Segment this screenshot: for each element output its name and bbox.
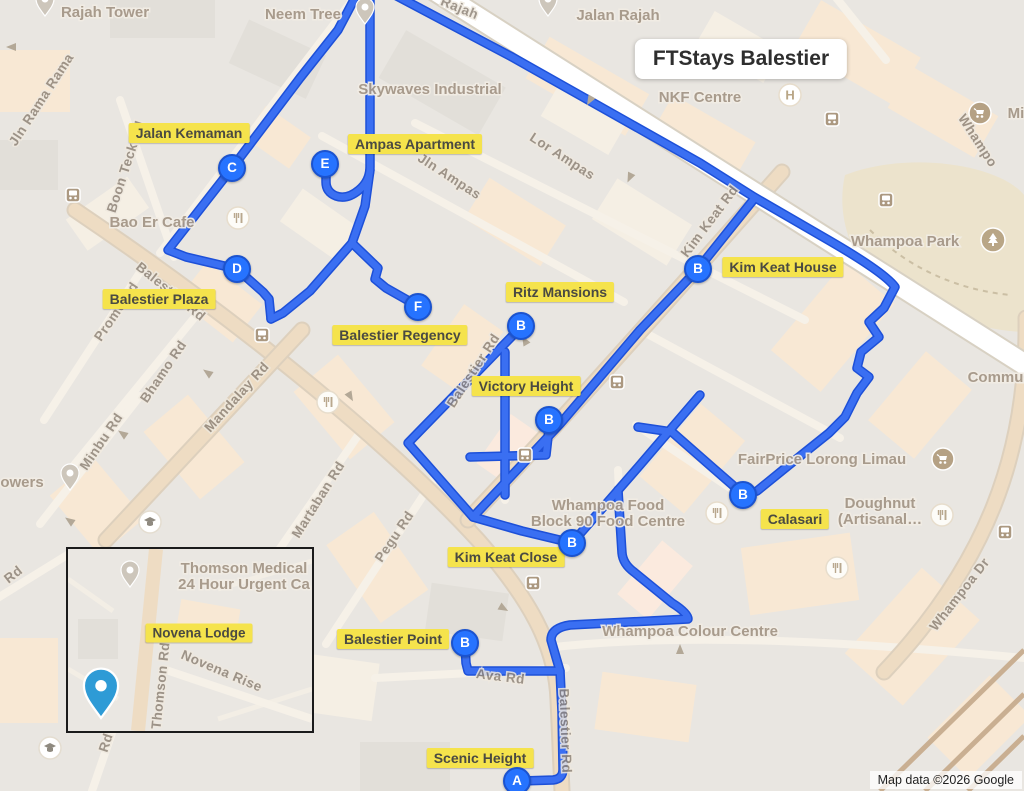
marker-B[interactable]: B <box>558 529 586 557</box>
street-label: Whampoa Dr <box>926 555 992 634</box>
restaurant-icon <box>317 391 339 413</box>
street-label: Novena Rise <box>179 647 265 695</box>
pin-icon <box>61 464 79 490</box>
marker-A[interactable]: A <box>503 767 531 791</box>
poi-label: Commu… <box>968 369 1024 386</box>
tree-icon <box>981 228 1005 252</box>
poi-label: FairPrice Lorong Limau <box>738 451 906 468</box>
place-label-kim-keat-house: Kim Keat House <box>722 257 843 277</box>
arrow-icon <box>201 366 214 378</box>
place-label-balestier-plaza: Balestier Plaza <box>103 289 216 309</box>
arrow-icon <box>345 391 357 404</box>
poi-label: Neem Tree <box>265 6 341 23</box>
svg-text:H: H <box>785 88 794 103</box>
arrow-icon <box>624 172 635 184</box>
pin-icon <box>539 0 557 16</box>
street-label: Lor Ampas <box>527 130 598 183</box>
street-label: Minbu Rd <box>77 410 126 473</box>
bus-icon <box>518 448 532 462</box>
place-label-calasari: Calasari <box>761 509 829 529</box>
restaurant-icon <box>227 207 249 229</box>
arrow-icon <box>6 43 16 51</box>
marker-E[interactable]: E <box>311 150 339 178</box>
bus-icon <box>66 188 80 202</box>
street-label: Rd <box>96 731 116 754</box>
marker-D[interactable]: D <box>223 255 251 283</box>
street-label: Thomson Rd <box>148 641 172 730</box>
bus-icon <box>526 576 540 590</box>
place-label-balestier-point: Balestier Point <box>337 629 449 649</box>
street-label: Pegu Rd <box>372 508 417 565</box>
map-attribution: Map data ©2026 Google <box>870 771 1022 789</box>
poi-label: owers <box>0 474 43 491</box>
arrow-icon <box>63 514 76 526</box>
marker-B[interactable]: B <box>507 312 535 340</box>
bus-icon <box>825 112 839 126</box>
street-label: Martaban Rd <box>289 459 348 541</box>
bus-icon <box>879 193 893 207</box>
school-icon <box>139 511 161 533</box>
street-label: Jln Rama Rama <box>6 51 77 149</box>
place-label-scenic-height: Scenic Height <box>427 748 534 768</box>
place-label-balestier-regency: Balestier Regency <box>332 325 467 345</box>
place-label-jalan-kemaman: Jalan Kemaman <box>129 123 250 143</box>
map-canvas[interactable]: HJln Rama RamaBoon Teck RdRajahJln Ampas… <box>0 0 1024 791</box>
poi-label: Bao Er Cafe <box>109 214 194 231</box>
poi-label: Doughnut(Artisanal… <box>838 495 922 528</box>
place-label-novena-lodge: Novena Lodge <box>145 624 252 643</box>
poi-label: Whampoa Colour Centre <box>602 623 778 640</box>
route-line[interactable] <box>638 427 744 495</box>
marker-B[interactable]: B <box>451 629 479 657</box>
poi-label: NKF Centre <box>659 89 742 106</box>
poi-label: Whampoa Park <box>851 233 960 250</box>
bus-icon <box>998 525 1012 539</box>
hospital-icon: H <box>779 84 801 106</box>
poi-label: Skywaves Industrial <box>358 81 501 98</box>
inset-map[interactable]: Thomson Medical24 Hour Urgent CaThomson … <box>66 547 314 733</box>
poi-label: Mi <box>1008 105 1024 122</box>
street-label: Mandalay Rd <box>201 359 272 435</box>
place-label-kim-keat-close: Kim Keat Close <box>448 547 565 567</box>
location-pin-icon <box>84 669 118 718</box>
bus-icon <box>255 328 269 342</box>
marker-C[interactable]: C <box>218 154 246 182</box>
school-icon <box>39 737 61 759</box>
pin-icon <box>36 0 54 16</box>
street-label: Rd <box>1 563 25 587</box>
marker-B[interactable]: B <box>729 481 757 509</box>
street-label: Jln Ampas <box>415 150 484 202</box>
poi-label: Rajah Tower <box>61 4 149 21</box>
page-title: FTStays Balestier <box>635 39 847 79</box>
marker-B[interactable]: B <box>684 255 712 283</box>
pin-icon <box>121 561 139 587</box>
cart-icon <box>932 448 954 470</box>
restaurant-icon <box>931 504 953 526</box>
marker-F[interactable]: F <box>404 293 432 321</box>
arrow-icon <box>498 603 511 615</box>
place-label-ritz-mansions: Ritz Mansions <box>506 282 614 302</box>
street-label: Bhamo Rd <box>137 338 189 406</box>
bus-icon <box>610 375 624 389</box>
restaurant-icon <box>826 557 848 579</box>
restaurant-icon <box>706 502 728 524</box>
place-label-victory-height: Victory Height <box>472 376 581 396</box>
poi-label: Jalan Rajah <box>576 7 659 24</box>
marker-B[interactable]: B <box>535 406 563 434</box>
place-label-ampas-apartment: Ampas Apartment <box>348 134 482 154</box>
poi-label: Thomson Medical24 Hour Urgent Ca <box>178 560 310 593</box>
poi-label: Whampoa FoodBlock 90 Food Centre <box>531 497 685 530</box>
street-label: Balestier Rd <box>557 688 575 773</box>
arrow-icon <box>676 644 684 654</box>
